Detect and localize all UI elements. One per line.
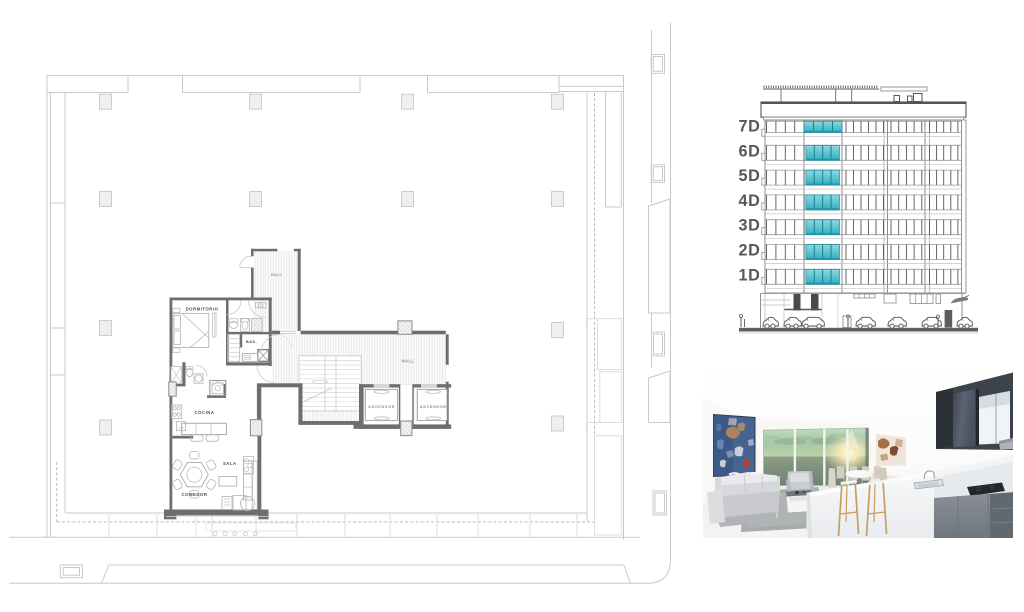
svg-text:ASCENSOR: ASCENSOR — [368, 404, 395, 409]
svg-text:5D: 5D — [739, 167, 761, 185]
svg-text:3D: 3D — [739, 217, 761, 235]
svg-text:COMEDOR: COMEDOR — [182, 492, 208, 497]
svg-text:7D: 7D — [739, 118, 761, 136]
svg-text:2D: 2D — [739, 242, 761, 260]
svg-text:6D: 6D — [739, 142, 761, 160]
svg-text:ASCENSOR: ASCENSOR — [420, 404, 447, 409]
svg-text:4D: 4D — [739, 192, 761, 210]
svg-text:SALA: SALA — [223, 461, 237, 466]
svg-text:HALL: HALL — [402, 358, 415, 363]
svg-text:DORMITORIO: DORMITORIO — [186, 306, 219, 311]
svg-text:HALL: HALL — [271, 273, 283, 277]
svg-text:1D: 1D — [739, 266, 761, 284]
svg-text:BAS.: BAS. — [246, 340, 257, 344]
svg-text:COCINA: COCINA — [195, 410, 215, 415]
